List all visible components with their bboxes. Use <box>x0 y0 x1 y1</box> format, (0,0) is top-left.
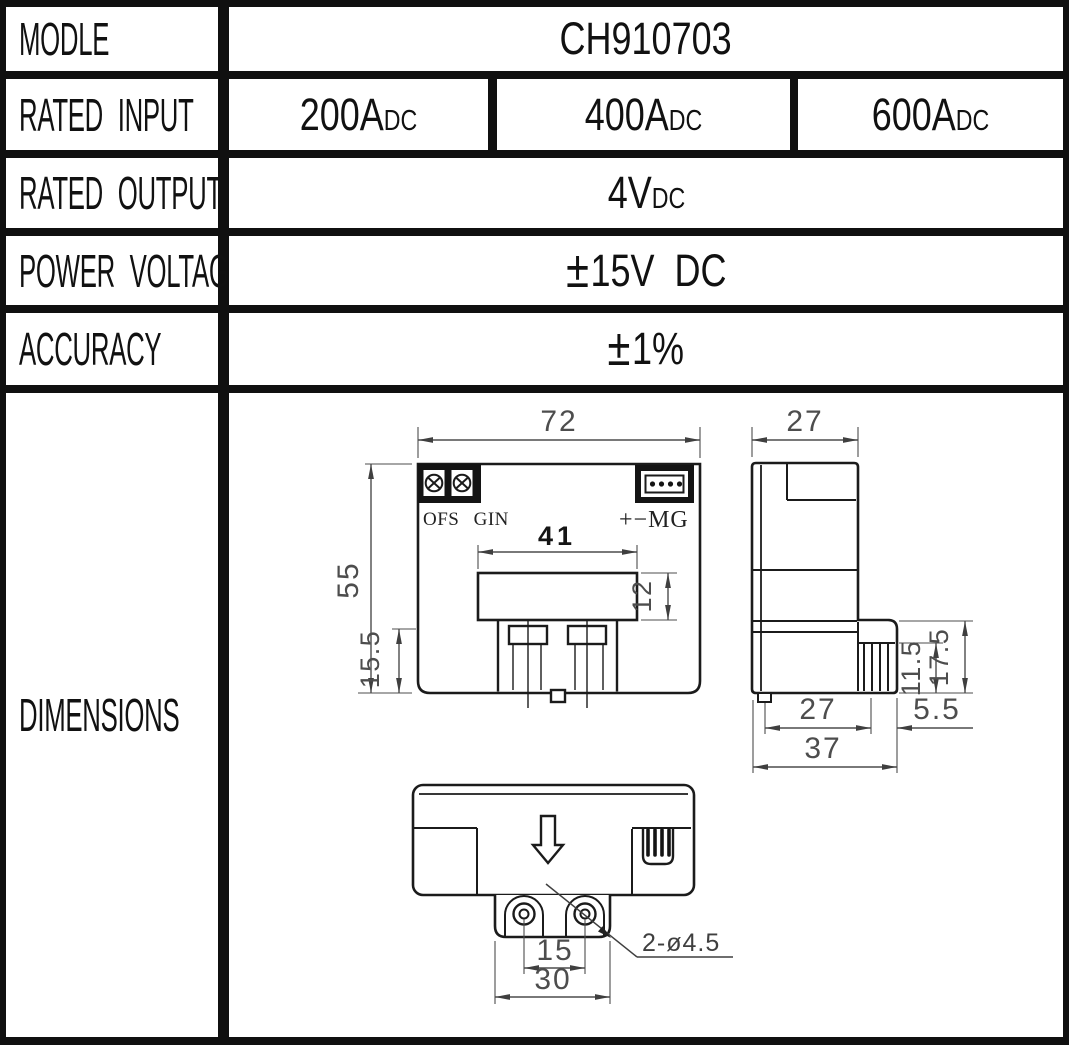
accuracy-value-cell: ±1% <box>229 313 1063 385</box>
side-conn-depth-dimension: 5.5 <box>897 693 973 728</box>
side-body-outline <box>752 463 897 693</box>
dimensions-label: DIMENSIONS <box>19 688 179 742</box>
side-body-depth-label: 27 <box>799 693 836 726</box>
rated-input-1-main: 200A <box>300 89 384 140</box>
front-foot-label: 15.5 <box>355 630 385 689</box>
accuracy-label: ACCURACY <box>19 322 161 376</box>
accuracy-value: ±1% <box>608 323 684 375</box>
power-voltage-label: POWER VOLTAGE <box>19 244 246 298</box>
dimensions-label-cell: DIMENSIONS <box>6 393 218 1037</box>
connector-pin-labels: +−MG <box>619 507 689 533</box>
power-voltage-text: 15V DC <box>590 245 726 296</box>
plus-minus-sign: ± <box>608 319 631 377</box>
connector-pin-icon <box>659 481 664 486</box>
model-label-cell: MODLE <box>6 7 218 71</box>
rated-output-main: 4V <box>607 167 651 218</box>
side-width-dimension: 27 <box>752 405 858 457</box>
dimensions-drawing-cell: OFS GIN +−MG <box>229 393 1063 1037</box>
rated-input-2-unit: DC <box>669 105 703 137</box>
mounting-flange <box>495 895 610 937</box>
connector-pin-icon <box>668 481 673 486</box>
rated-output-label-cell: RATED OUTPUT <box>6 158 218 228</box>
rated-input-2-main: 400A <box>585 89 669 140</box>
front-view: OFS GIN +−MG <box>332 405 700 708</box>
front-height-label: 55 <box>332 561 365 598</box>
model-value: CH910703 <box>560 13 732 65</box>
accuracy-text: 1% <box>632 323 684 374</box>
power-voltage-value: ±15V DC <box>566 245 727 297</box>
side-conn-depth-label: 5.5 <box>913 693 961 726</box>
side-foot <box>758 693 771 702</box>
rated-output-value: 4VDC <box>607 167 685 219</box>
rated-input-label: RATED INPUT <box>19 88 194 142</box>
side-view: 27 11.5 17.5 27 <box>752 405 973 773</box>
hole-callout-label: 2-ø4.5 <box>642 929 720 957</box>
rated-input-3-unit: DC <box>956 105 990 137</box>
output-connector <box>635 465 694 503</box>
front-width-label: 72 <box>540 405 577 438</box>
flange-width-label: 30 <box>534 963 571 996</box>
trimmer-labels: OFS GIN <box>423 509 509 530</box>
slot-width-label: 41 <box>538 521 576 551</box>
side-total-depth-label: 37 <box>804 732 841 765</box>
slot-height-label: 12 <box>627 579 657 612</box>
rated-output-value-cell: 4VDC <box>229 158 1063 228</box>
bottom-view: 2-ø4.5 15 30 <box>413 785 733 1004</box>
accuracy-label-cell: ACCURACY <box>6 313 218 385</box>
side-body-depth-dimension: 27 <box>765 693 871 734</box>
connector-pin-icon <box>677 481 682 486</box>
rated-input-cell-3: 600ADC <box>798 79 1063 150</box>
power-voltage-label-cell: POWER VOLTAGE <box>6 236 218 305</box>
side-step-height-label: 17.5 <box>924 628 954 687</box>
bottom-notch <box>551 690 565 702</box>
rated-output-label: RATED OUTPUT <box>19 166 222 220</box>
rated-input-cell-1: 200ADC <box>229 79 488 150</box>
plus-minus-sign: ± <box>566 241 589 299</box>
rated-input-label-cell: RATED INPUT <box>6 79 218 150</box>
rated-input-3-main: 600A <box>872 89 956 140</box>
side-width-label: 27 <box>786 405 823 438</box>
front-width-dimension: 72 <box>418 405 700 458</box>
rated-input-value-1: 200ADC <box>300 89 418 141</box>
model-value-cell: CH910703 <box>229 7 1063 71</box>
rated-output-unit: DC <box>651 183 685 215</box>
front-foot-dimension: 15.5 <box>355 629 416 693</box>
rated-input-value-3: 600ADC <box>872 89 990 141</box>
rated-input-1-unit: DC <box>384 105 418 137</box>
trimmer-screws <box>418 464 481 503</box>
rated-input-cell-2: 400ADC <box>497 79 790 150</box>
model-label: MODLE <box>19 12 109 66</box>
side-conn-height-label: 11.5 <box>896 640 926 697</box>
connector-pin-icon <box>650 481 655 486</box>
dimension-drawing: OFS GIN +−MG <box>229 393 1063 1037</box>
power-voltage-value-cell: ±15V DC <box>229 236 1063 305</box>
rated-input-value-2: 400ADC <box>585 89 703 141</box>
spec-sheet: MODLE CH910703 RATED INPUT 200ADC 400ADC… <box>0 0 1069 1045</box>
